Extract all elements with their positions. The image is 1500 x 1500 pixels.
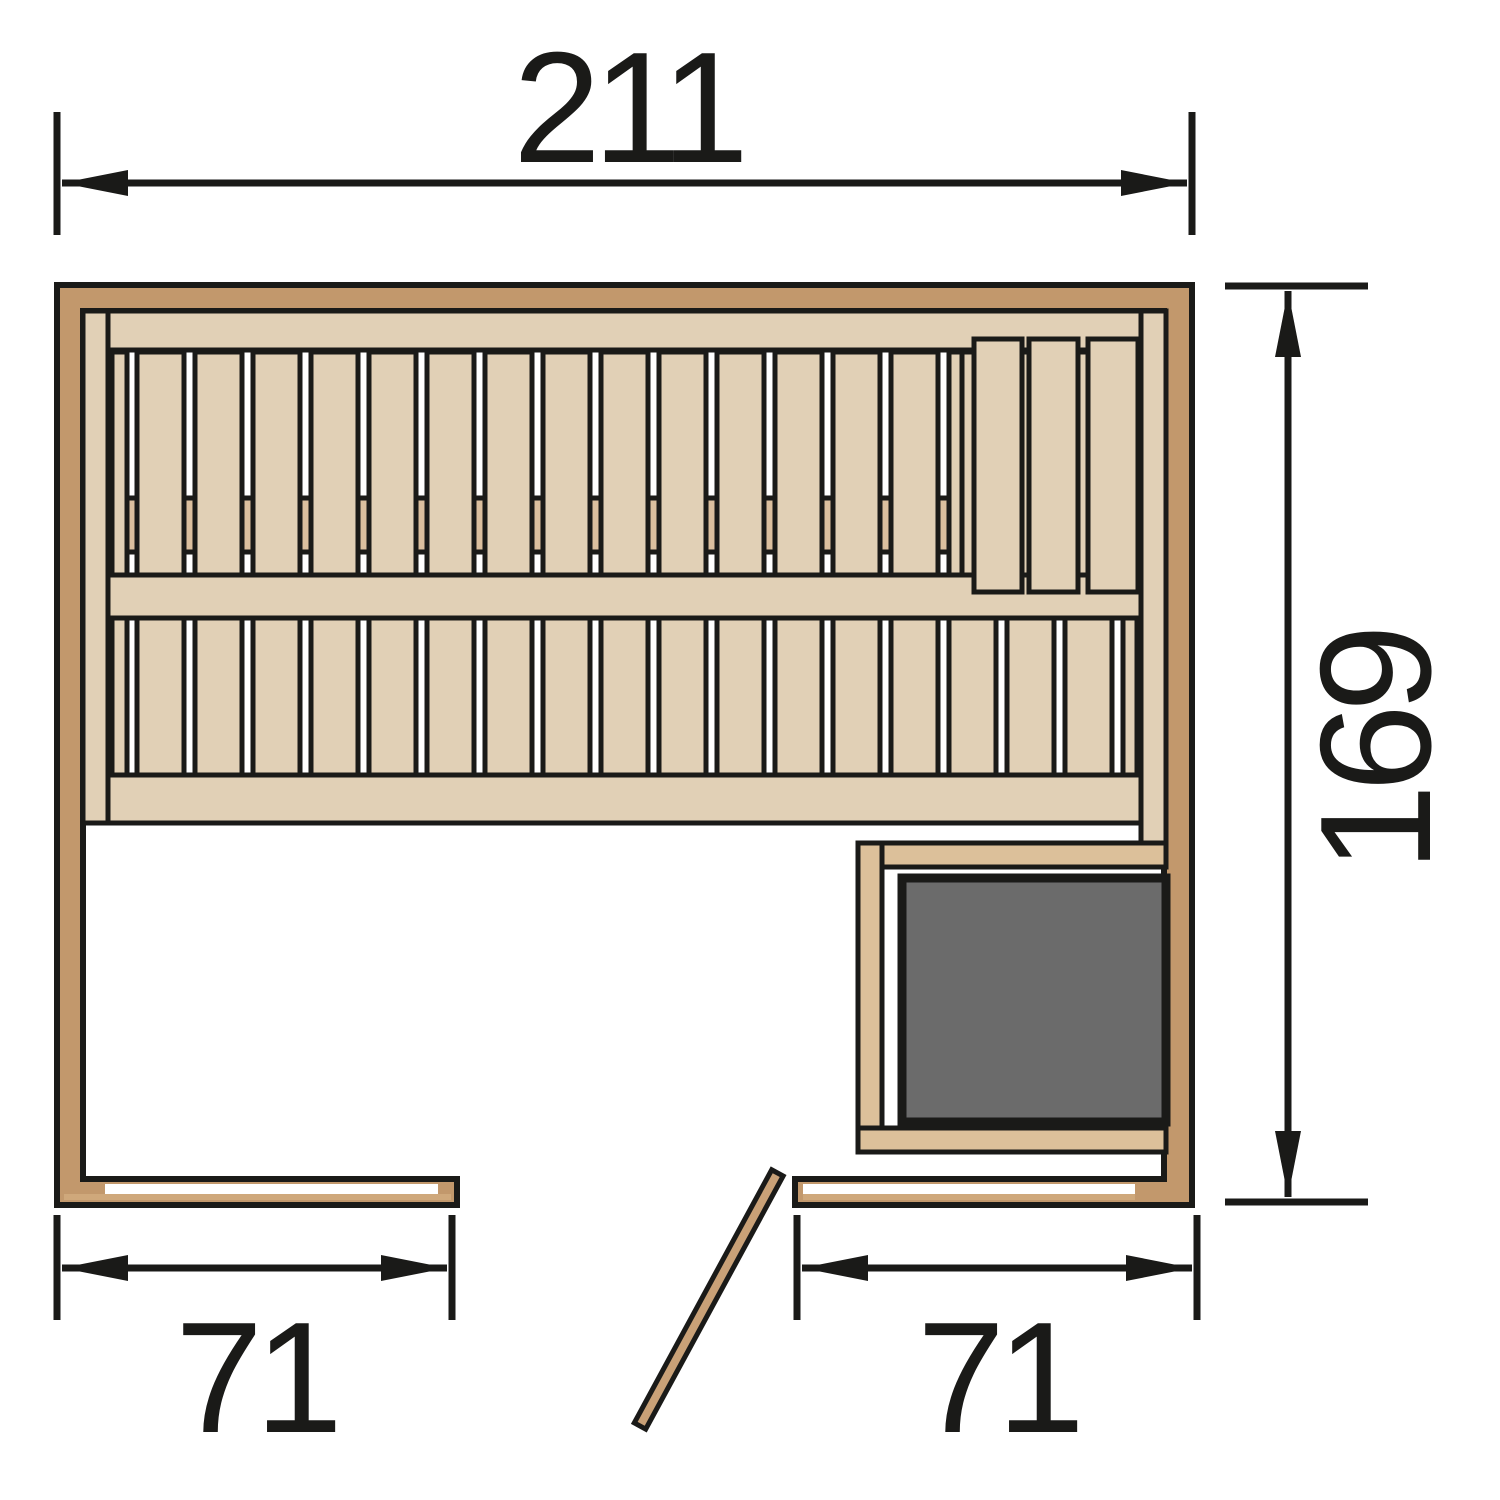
arrow-down-icon [1275,1131,1301,1197]
bottom-right-wall-strip [803,1194,1135,1200]
heater-guard-bottom [858,1128,1166,1152]
arrow-right-icon [1126,1255,1192,1281]
bench-slat [601,618,648,775]
heater-guard-top [858,843,1166,867]
bench-slat [112,618,127,775]
dim-right-wall-label: 71 [917,1290,1078,1466]
arrow-left-icon [802,1255,868,1281]
bench-slat [195,618,242,775]
backrest-board [1088,339,1138,592]
bench-slat [369,618,416,775]
backrest-board [974,339,1022,592]
bench-slat [833,618,880,775]
bench-slat [485,618,532,775]
bench-slat [717,618,764,775]
bottom-left-wall-strip [64,1194,451,1200]
bench-slat [1007,618,1054,775]
lower-bench-slats [112,618,1137,775]
heater [902,878,1166,1122]
dim-depth: 169 [1225,286,1464,1202]
bench-slat [112,352,127,575]
bench-slat [1123,618,1137,775]
bench-left-rail [83,311,108,823]
bench-slat [485,352,532,575]
bench-slat [659,618,706,775]
bench-slat [659,352,706,575]
bench-slat [311,352,358,575]
door-leaf [634,1170,783,1429]
bottom-left-wall-lining [105,1184,438,1194]
bench-slat [949,352,962,575]
bench-slat [775,618,822,775]
arrow-right-icon [1121,170,1187,196]
dim-width-label: 211 [513,20,742,196]
bench-slat [253,352,300,575]
bench-slat [311,618,358,775]
dim-right-wall: 71 [797,1215,1197,1466]
bench-bottom-rail [108,775,1141,823]
bench-slat [137,352,184,575]
arrow-right-icon [381,1255,447,1281]
bench-slat [717,352,764,575]
bench-slat [427,618,474,775]
door-leaf-group [634,1170,783,1429]
bench-slat [137,618,184,775]
bottom-right-wall-lining [803,1184,1135,1194]
bench-slat [891,352,938,575]
bench-slat [833,352,880,575]
bench-slat [427,352,474,575]
bench-slat [949,618,996,775]
dim-width: 211 [57,20,1192,235]
arrow-left-icon [62,1255,128,1281]
bench-slat [369,352,416,575]
bench-slat [253,618,300,775]
sauna-floor-plan: 211 169 71 71 [0,0,1500,1500]
bench-slat [1065,618,1112,775]
arrow-left-icon [62,170,128,196]
floor-plan-canvas: 211 169 71 71 [0,0,1500,1500]
heater-guard-left [858,843,882,1152]
dim-left-wall: 71 [57,1215,452,1466]
arrow-up-icon [1275,291,1301,357]
dim-left-wall-label: 71 [175,1290,336,1466]
bench-slat [601,352,648,575]
bench-slat [543,618,590,775]
bench-slat [195,352,242,575]
bench-slat [543,352,590,575]
dim-depth-label: 169 [1288,631,1464,872]
bench-slat [775,352,822,575]
bench-slat [891,618,938,775]
backrest-boards [974,339,1138,592]
backrest-board [1029,339,1078,592]
bench-right-rail [1141,311,1166,845]
